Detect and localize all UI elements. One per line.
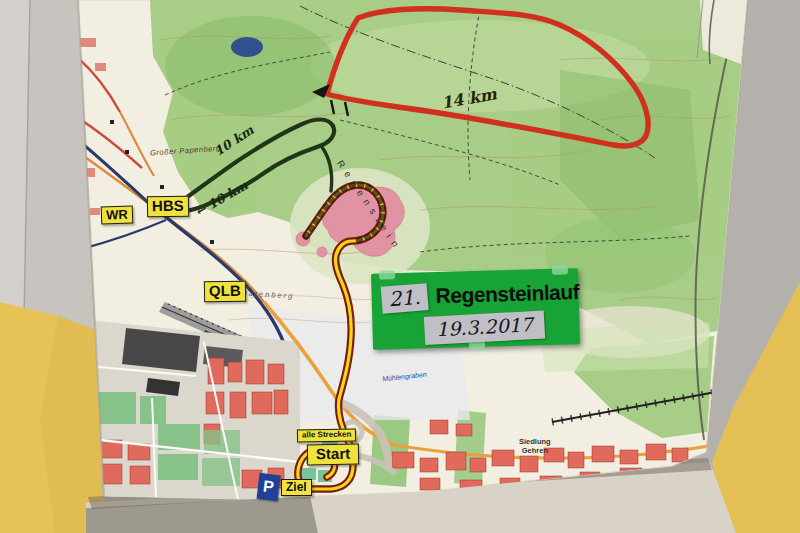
pond <box>231 37 263 57</box>
marker-start: Start <box>307 444 360 465</box>
photo-of-race-course-map: Großer Papenberg Regenstein Platenberg S… <box>0 0 800 533</box>
place-name-siedlung-gehren: Siedlung Gehren <box>519 437 551 455</box>
junction-tag-wr: WR <box>101 205 133 224</box>
sign-race-number: 21. <box>381 283 429 314</box>
map-photo-artwork <box>0 0 800 533</box>
junction-tag-qlb: QLB <box>204 281 246 302</box>
parking-icon: P <box>256 473 280 501</box>
tape-mark <box>552 265 568 274</box>
event-sign: 21. Regensteinlauf 19.3.2017 <box>371 268 580 350</box>
sign-title: Regensteinlauf <box>435 280 579 308</box>
marker-finish: Ziel <box>281 479 312 496</box>
junction-tag-hbs: HBS <box>147 196 189 217</box>
sign-date: 19.3.2017 <box>424 311 545 345</box>
tape-mark <box>379 270 395 279</box>
marker-all-courses: alle Strecken <box>297 428 357 442</box>
